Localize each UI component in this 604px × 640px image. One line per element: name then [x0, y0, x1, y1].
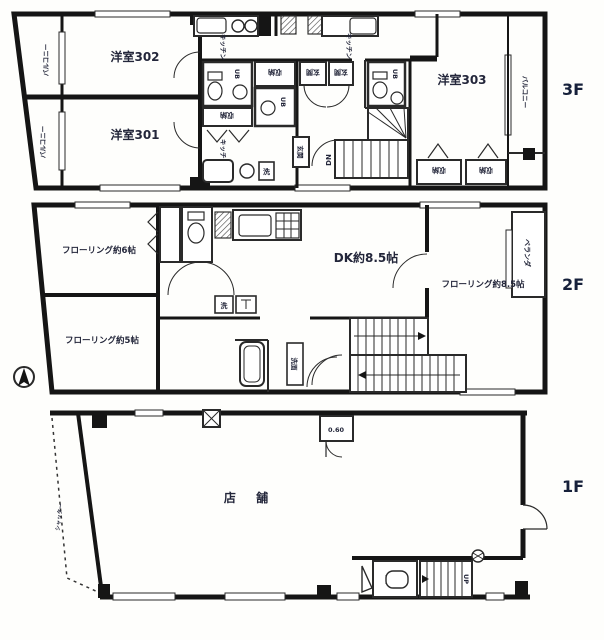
- window: [135, 410, 163, 416]
- door-arc: [201, 262, 234, 295]
- storage-label: 収納: [479, 166, 493, 175]
- pillar: [92, 413, 107, 428]
- room-label-303: 洋室303: [437, 72, 486, 87]
- door-arc: [312, 355, 342, 385]
- veranda-label: ベランダ: [523, 239, 532, 267]
- storage-label: 収納: [268, 68, 282, 77]
- closet-box: [160, 207, 180, 262]
- stairs-dn-label: DN: [325, 154, 333, 166]
- closet-door-mark: [428, 144, 448, 158]
- sink-counter-icon: [203, 160, 254, 182]
- door-arc: [307, 357, 337, 387]
- wall-1f-slant: [78, 413, 102, 594]
- door-arc: [327, 85, 349, 107]
- window: [295, 185, 350, 191]
- floorplan-page: キッチン キッチン UB 収納 UB 収納 キッチン: [0, 0, 604, 640]
- door-arc: [304, 85, 326, 107]
- room-label-dk: DK約8.5帖: [334, 250, 399, 265]
- floor-tag-2f: 2F: [562, 275, 584, 294]
- kitchen-label: キッチン: [345, 33, 353, 60]
- door-wedge: [362, 566, 372, 592]
- kitchen-label: キッチン: [219, 34, 227, 61]
- balcony-label: バルコニー: [521, 76, 529, 108]
- window: [337, 593, 359, 600]
- floor-1f: 0.60 UP 店 舗 シ: [50, 410, 584, 600]
- window: [95, 11, 170, 17]
- genkan-label: 玄関: [296, 146, 305, 160]
- floor-tag-3f: 3F: [562, 80, 584, 99]
- window: [100, 185, 180, 191]
- north-compass-icon: [14, 367, 34, 387]
- door-arc: [174, 52, 200, 78]
- utility-label: 0.60: [328, 426, 345, 434]
- door-arc: [523, 505, 547, 529]
- toilet-icon: [182, 207, 212, 262]
- room-label-flooring6: フローリング約6帖: [62, 245, 136, 256]
- stairs-2f-icon: [350, 318, 466, 392]
- window: [113, 593, 175, 600]
- senmen-label: 洗面: [290, 358, 299, 372]
- room-label-shop: 店 舗: [224, 490, 276, 505]
- pillar: [98, 584, 110, 598]
- door-arc: [174, 122, 200, 148]
- pillar: [317, 585, 331, 599]
- balcony-label: バルコニー: [42, 44, 50, 76]
- ub-label: UB: [233, 69, 241, 79]
- door-arc: [326, 441, 342, 457]
- room-label-flooring5: フローリング約5帖: [65, 335, 139, 346]
- stairs-3f-icon: [335, 108, 408, 178]
- window: [59, 32, 65, 84]
- meter-icon: [472, 550, 484, 562]
- stairs-up-label: UP: [462, 574, 470, 584]
- closet-door-mark: [478, 144, 498, 158]
- balcony-label: バルコニー: [39, 126, 47, 158]
- floor-2f: 洗 洗面 ベランダ フローリング約6帖 フローリング約5帖 DK約8.5帖 フロ…: [14, 202, 584, 395]
- door-arc: [168, 262, 201, 295]
- floor-tag-1f: 1F: [562, 477, 584, 496]
- laundry-label: 洗: [221, 301, 228, 310]
- laundry-label: 洗: [263, 167, 270, 176]
- pillar: [515, 581, 528, 598]
- shutter-label: シャッター: [53, 502, 64, 531]
- window: [460, 389, 515, 395]
- bathtub-icon: [240, 342, 264, 386]
- ub-label: UB: [391, 69, 399, 79]
- room-label-302: 洋室302: [110, 49, 159, 64]
- room-label-flooring85: フローリング約8.5帖: [441, 279, 525, 290]
- washer-icon: [308, 16, 322, 34]
- window: [225, 593, 285, 600]
- window: [59, 112, 65, 170]
- storage-label: 収納: [432, 166, 446, 175]
- window: [75, 202, 130, 208]
- room-label-301: 洋室301: [110, 127, 159, 142]
- genkan-label: 玄関: [306, 68, 320, 77]
- genkan-label: 玄関: [334, 68, 348, 77]
- toilet-icon: [373, 561, 417, 597]
- crossed-box-icon: [203, 410, 220, 427]
- ub-label: UB: [279, 97, 287, 107]
- window: [486, 593, 504, 600]
- ub-room-icon: [255, 88, 295, 126]
- floorplan-drawing: キッチン キッチン UB 収納 UB 収納 キッチン: [0, 0, 604, 640]
- kitchen-counter-icon: [233, 210, 301, 240]
- floor-3f: キッチン キッチン UB 収納 UB 収納 キッチン: [14, 11, 584, 191]
- kitchen-counter-icon: [194, 16, 271, 36]
- washer-icon: [215, 212, 231, 238]
- washer-icon: [281, 16, 296, 34]
- storage-label: 収納: [220, 111, 234, 120]
- closet-door-mark: [229, 130, 249, 142]
- pillar: [523, 148, 535, 160]
- ub-room-icon: [203, 62, 252, 106]
